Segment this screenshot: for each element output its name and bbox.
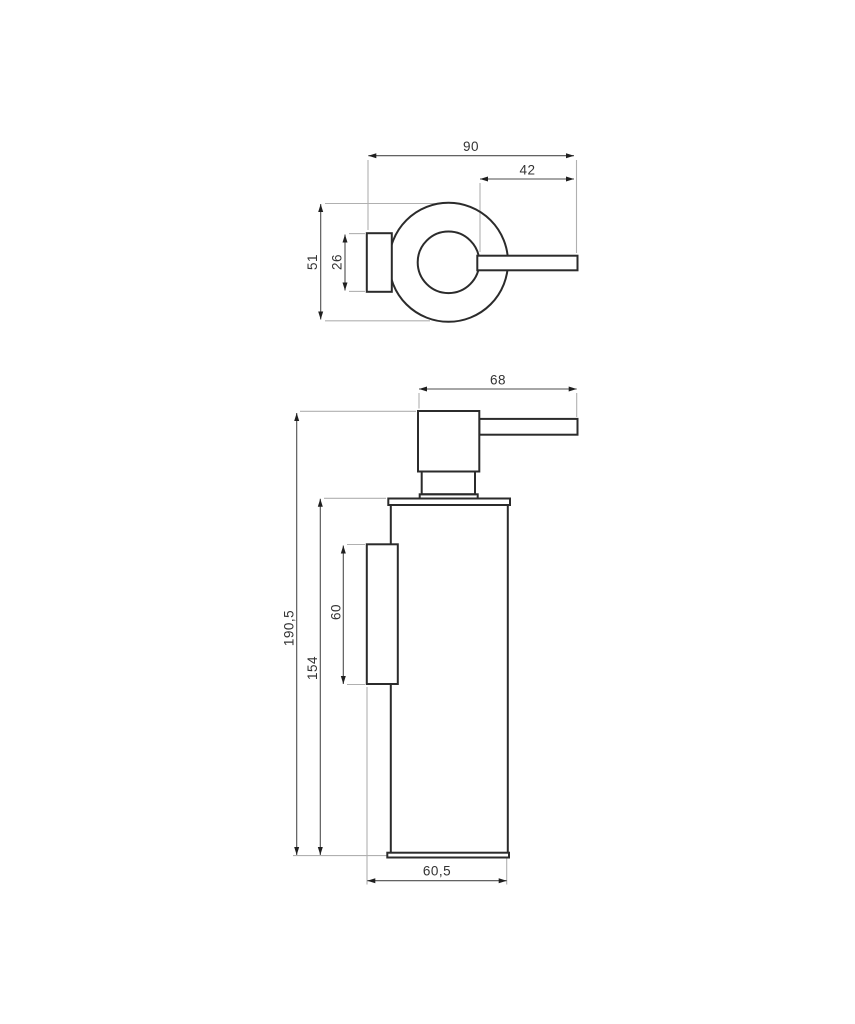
- pump-inner-circle: [418, 231, 480, 293]
- arrow-60-bottom: [341, 676, 346, 684]
- front-view-outlines: [367, 411, 578, 858]
- wall-plate: [367, 544, 398, 684]
- top-view-extension-lines: [325, 160, 577, 321]
- arrow-154-top: [318, 499, 323, 507]
- arrow-51-top: [318, 204, 323, 212]
- arrow-51-bottom: [318, 312, 323, 320]
- arrow-60p5-left: [367, 878, 375, 883]
- arrow-190-top: [294, 413, 299, 421]
- dim-label-68: 68: [490, 373, 506, 388]
- dim-label-26: 26: [330, 254, 345, 270]
- bottom-rim: [387, 853, 509, 858]
- spout-lever-front: [479, 419, 577, 435]
- pump-neck: [422, 472, 475, 495]
- top-view-dimension-lines: [321, 156, 574, 320]
- arrow-90-left: [368, 153, 376, 158]
- dim-label-60-5: 60,5: [423, 864, 451, 879]
- technical-drawing-page: 90 42 51 26: [0, 0, 855, 1024]
- top-view-arrows: [318, 153, 574, 319]
- arrow-42-right: [566, 177, 574, 182]
- arrow-60p5-right: [499, 878, 507, 883]
- dim-label-154: 154: [305, 656, 320, 680]
- arrow-26-top: [343, 235, 348, 243]
- dispenser-dimension-drawing: 90 42 51 26: [0, 0, 855, 1024]
- arrow-26-bottom: [343, 283, 348, 291]
- arrow-60-top: [341, 546, 346, 554]
- pump-head: [418, 411, 479, 472]
- top-view: 90 42 51 26: [305, 139, 578, 322]
- arrow-90-right: [566, 153, 574, 158]
- arrow-190-bottom: [294, 847, 299, 855]
- dim-label-51: 51: [305, 254, 320, 270]
- dim-label-42: 42: [519, 163, 535, 178]
- dim-label-60: 60: [329, 604, 344, 620]
- front-view: 68 190,5 154 60 60,5: [282, 373, 578, 885]
- dim-label-190-5: 190,5: [282, 610, 297, 646]
- arrow-154-bottom: [318, 847, 323, 855]
- top-view-outlines: [367, 203, 578, 322]
- arrow-68-right: [569, 387, 577, 392]
- wall-bracket-top: [367, 233, 392, 292]
- spout-lever-top: [477, 256, 577, 271]
- arrow-68-left: [419, 387, 427, 392]
- bottle-body: [391, 505, 508, 853]
- arrow-42-left: [480, 177, 488, 182]
- dim-label-90: 90: [463, 139, 479, 154]
